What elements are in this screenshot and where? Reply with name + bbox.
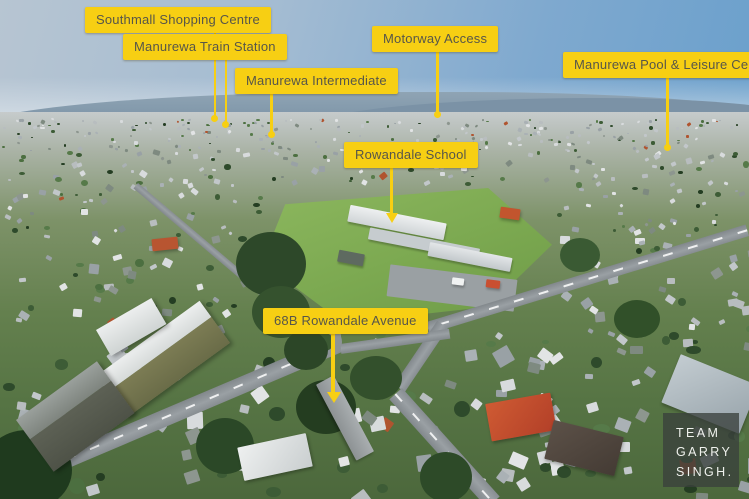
house-roof [618,212,623,216]
house-roof [148,127,151,130]
tree-cluster [284,330,328,370]
house-roof [623,466,632,475]
house-roof [83,200,87,203]
house-roof [267,148,271,152]
house-roof [658,223,666,230]
house-roof [93,120,98,125]
leader-dot [664,144,671,151]
tree-cluster [420,452,472,499]
tree [187,122,190,124]
house-roof [637,120,640,123]
leader-line [270,91,273,133]
house-roof [626,133,628,135]
tree [696,204,700,208]
house-roof [614,416,631,432]
house-roof [19,118,22,121]
house-roof [470,398,483,411]
watermark-line: GARRY [676,443,739,462]
house-roof [564,206,570,211]
tree [732,155,737,158]
house-roof [19,277,26,282]
house-roof [359,134,362,137]
tree [340,364,350,371]
house-roof [139,169,148,177]
house-roof [153,149,161,156]
tree [215,194,221,200]
tree [651,141,655,144]
house-roof [652,164,657,168]
house-roof [592,177,596,180]
house-roof [686,135,690,138]
house-roof [73,309,83,318]
house-roof [361,124,365,128]
tree [256,119,260,121]
house-roof [211,235,221,244]
house-roof [464,131,468,135]
house-roof [168,140,171,142]
tree [48,125,50,127]
house-roof [294,124,299,128]
callout-motorway-access: Motorway Access [372,26,498,52]
house-roof [492,345,515,368]
house-roof [644,222,648,226]
house-roof [76,130,79,133]
house-roof [577,156,582,159]
house-roof [397,120,401,124]
house-roof [612,192,616,195]
house-roof [48,148,51,151]
tree [542,340,549,345]
house-roof [378,171,387,180]
house-roof [220,225,225,229]
house-roof [695,126,699,129]
tree [12,228,18,234]
callout-manurewa-intermediate: Manurewa Intermediate [235,68,398,94]
tree [247,124,250,126]
house-roof [524,133,528,135]
tree [610,125,613,127]
house-roof [59,283,68,292]
tree [387,125,389,128]
house-roof [161,257,173,268]
house-roof [687,122,692,127]
tree [2,146,4,148]
house-roof [617,347,627,355]
house-roof [22,193,27,197]
house-roof [673,221,677,225]
tree [371,175,375,179]
tree [599,121,603,124]
house-roof [593,123,595,125]
house-roof [410,129,413,132]
house-roof [239,404,249,414]
house-roof [636,149,640,153]
house-roof [741,305,749,315]
house-roof [475,125,479,129]
watermark-line: TEAM [676,424,739,443]
house-roof [88,132,91,135]
tree [706,122,709,124]
house-roof [81,209,88,215]
house-roof [447,122,451,126]
tree [272,177,276,181]
leader-dot [222,121,229,128]
house-roof [463,125,466,127]
house-roof [729,125,733,129]
leader-dot [434,111,441,118]
house-roof [653,128,658,132]
house-roof [162,308,172,316]
tree [715,192,721,197]
house-roof [108,285,119,295]
house-roof [507,142,511,146]
tree [486,341,496,347]
tree [145,122,147,124]
house-roof [743,342,749,352]
house-roof [316,144,320,148]
house-roof [327,159,331,163]
house-roof [199,167,205,172]
tree [258,196,263,200]
house-roof [696,492,709,499]
house-roof [630,346,643,354]
leader-line [331,332,335,392]
house-roof [351,489,374,499]
house-roof [577,133,581,137]
house-roof [440,172,445,176]
house-roof [482,118,485,121]
house-roof [40,120,45,125]
house-roof [131,170,134,173]
house-roof [285,119,288,122]
house-roof [112,140,115,142]
house-roof [471,134,474,136]
house-roof [242,153,249,158]
tree [366,121,369,123]
tree [576,182,582,187]
leader-line [390,167,393,214]
house-roof [716,120,718,122]
house-roof [670,198,676,204]
house-roof [586,401,599,413]
house-roof [702,125,705,127]
house-roof [585,373,594,378]
callout-68b-rowandale-avenue: 68B Rowandale Avenue [263,308,428,334]
house-roof [82,120,85,122]
tree [28,122,31,124]
house-roof [701,201,706,205]
house-roof [291,161,299,167]
tree [73,273,79,277]
tree [51,130,54,133]
tree [632,140,635,143]
house-roof [665,295,676,305]
tree [76,263,84,268]
house-roof [612,136,615,139]
tree [678,171,683,175]
house-roof [272,141,275,143]
tree [669,332,679,340]
house-roof [118,224,126,232]
house-roof [447,175,452,179]
tree [377,484,388,494]
tree [471,176,474,178]
tree [96,473,106,482]
house-roof [30,150,32,151]
house-roof [444,380,457,391]
house-roof [212,296,219,303]
tree [209,143,211,145]
watermark-line: SINGH. [676,463,739,482]
house-roof [130,135,133,138]
house-roof [259,138,263,141]
house-roof [182,123,185,126]
house-roof [649,226,657,233]
house-roof [601,168,605,171]
tree [55,359,69,370]
house-roof [586,204,591,208]
house-roof [227,129,231,133]
tree [3,383,15,391]
tree [163,123,166,126]
house-roof [273,128,277,132]
house-roof [700,160,706,164]
house-roof [184,469,201,485]
house-roof [190,187,199,195]
house-roof [635,408,650,423]
tree [596,120,599,123]
house-roof [261,124,265,127]
house-roof [205,131,208,133]
tree [613,229,616,232]
tree [743,161,749,168]
house-roof [638,240,644,245]
leader-dot [268,131,275,138]
house-roof [711,267,724,280]
tree [55,177,62,182]
tree [408,168,414,172]
house-roof [94,131,98,135]
house-roof [122,163,127,168]
house-roof [333,137,336,140]
tree-cluster [560,238,600,272]
house-roof [178,246,184,252]
house-roof [236,148,240,152]
house-roof [517,128,522,133]
house-roof [540,139,543,142]
tree [715,214,718,216]
tree [211,158,215,161]
house-roof [544,126,547,129]
house-roof [689,324,696,330]
tree [206,265,214,271]
tree [17,133,20,135]
house-roof [644,133,648,137]
house-roof [465,349,479,362]
house-roof [649,119,652,122]
house-roof [567,150,570,152]
tree [701,120,704,123]
callout-manurewa-train-station: Manurewa Train Station [123,34,287,60]
house-roof [669,170,676,176]
house-roof [634,229,642,236]
house-roof [667,278,675,284]
house-roof [587,141,591,145]
tree [181,135,184,137]
tree [206,302,213,308]
tree [591,357,602,368]
house-roof [533,131,538,135]
house-roof [670,182,676,187]
tree [557,213,562,217]
tree [169,297,176,304]
house-roof [136,151,142,157]
tree [349,180,352,182]
house-roof [608,331,616,337]
tree [135,259,144,268]
house-roof [643,366,655,378]
house-roof [8,205,13,210]
house-roof [88,263,99,273]
house-roof [485,146,489,150]
house-roof [597,127,602,132]
house-roof [738,481,749,494]
callout-manurewa-pool-leisure-centre: Manurewa Pool & Leisure Centre [563,52,749,78]
house-roof [44,234,50,238]
house-roof [694,138,698,142]
house-roof [505,160,512,167]
leader-arrow [386,213,398,223]
house-roof [46,254,53,260]
tree [540,463,551,472]
leader-dot [211,115,218,122]
tree [649,126,653,130]
tree [350,177,353,179]
house-roof [480,138,483,141]
house-roof [591,163,594,165]
tree [698,190,703,194]
house-roof [228,231,232,235]
house-roof [719,120,721,122]
tree [662,336,671,345]
house-roof [570,142,575,146]
house-roof [731,291,738,297]
house-roof [232,199,236,203]
tree [293,154,298,157]
tree [537,151,541,155]
tree [64,144,67,147]
tree [696,167,703,172]
leader-arrow [327,392,341,403]
tree [99,193,103,196]
tree [243,122,247,125]
house-roof [79,170,85,176]
house-roof [707,180,713,186]
house-roof [149,219,157,227]
house-roof [109,145,113,148]
tree [61,163,65,165]
callout-rowandale-school: Rowandale School [344,142,478,168]
tree [76,153,82,157]
tree [250,133,253,135]
tree [181,119,184,121]
house-roof [127,270,137,280]
tree [107,170,113,174]
tree [31,137,34,139]
house-roof [197,146,201,150]
house-roof [337,127,341,131]
tree-cluster [614,300,660,338]
tree [534,127,537,129]
house-roof [610,176,614,180]
house-roof [723,182,728,187]
house-roof [222,308,232,318]
house-roof [500,378,516,392]
tree [558,141,562,143]
house-roof [291,179,298,186]
house-roof [621,122,624,124]
house-roof [618,135,623,140]
house-roof [588,328,595,334]
tree [189,149,192,151]
tree [636,248,642,254]
house-roof [711,159,715,163]
house-roof [17,142,21,145]
house-roof [178,192,185,199]
house-roof [213,179,220,186]
house-roof [719,152,725,158]
house-roof [554,143,558,147]
house-roof [212,169,216,172]
callout-southmall-shopping-centre: Southmall Shopping Centre [85,7,271,33]
house-roof [274,151,279,155]
parked-van [452,277,465,285]
tree [208,175,213,179]
house-roof [290,119,293,122]
house-roof [166,160,171,165]
house-roof [17,218,23,224]
house-roof [16,402,26,411]
house-roof [424,180,431,186]
tree [632,187,639,191]
house-roof [310,127,313,130]
house-roof [30,212,35,215]
tree [67,151,72,155]
house-roof [31,391,42,400]
house-roof [286,147,290,151]
leader-line [436,49,439,113]
house-roof [281,176,284,179]
house-roof [113,228,117,232]
tree [530,134,532,136]
house-roof [216,135,219,138]
tree [253,203,260,207]
house-roof [38,189,46,195]
house-roof [683,143,688,148]
house-roof [648,218,653,222]
tree [500,177,505,181]
house-roof [543,177,549,183]
tree [686,346,701,355]
house-roof [78,146,83,151]
house-roof [188,118,191,120]
tree [348,132,350,134]
tree [557,466,571,478]
house-roof [178,144,182,148]
house-roof [659,286,667,292]
house-roof [579,187,584,191]
house-roof [670,161,676,167]
